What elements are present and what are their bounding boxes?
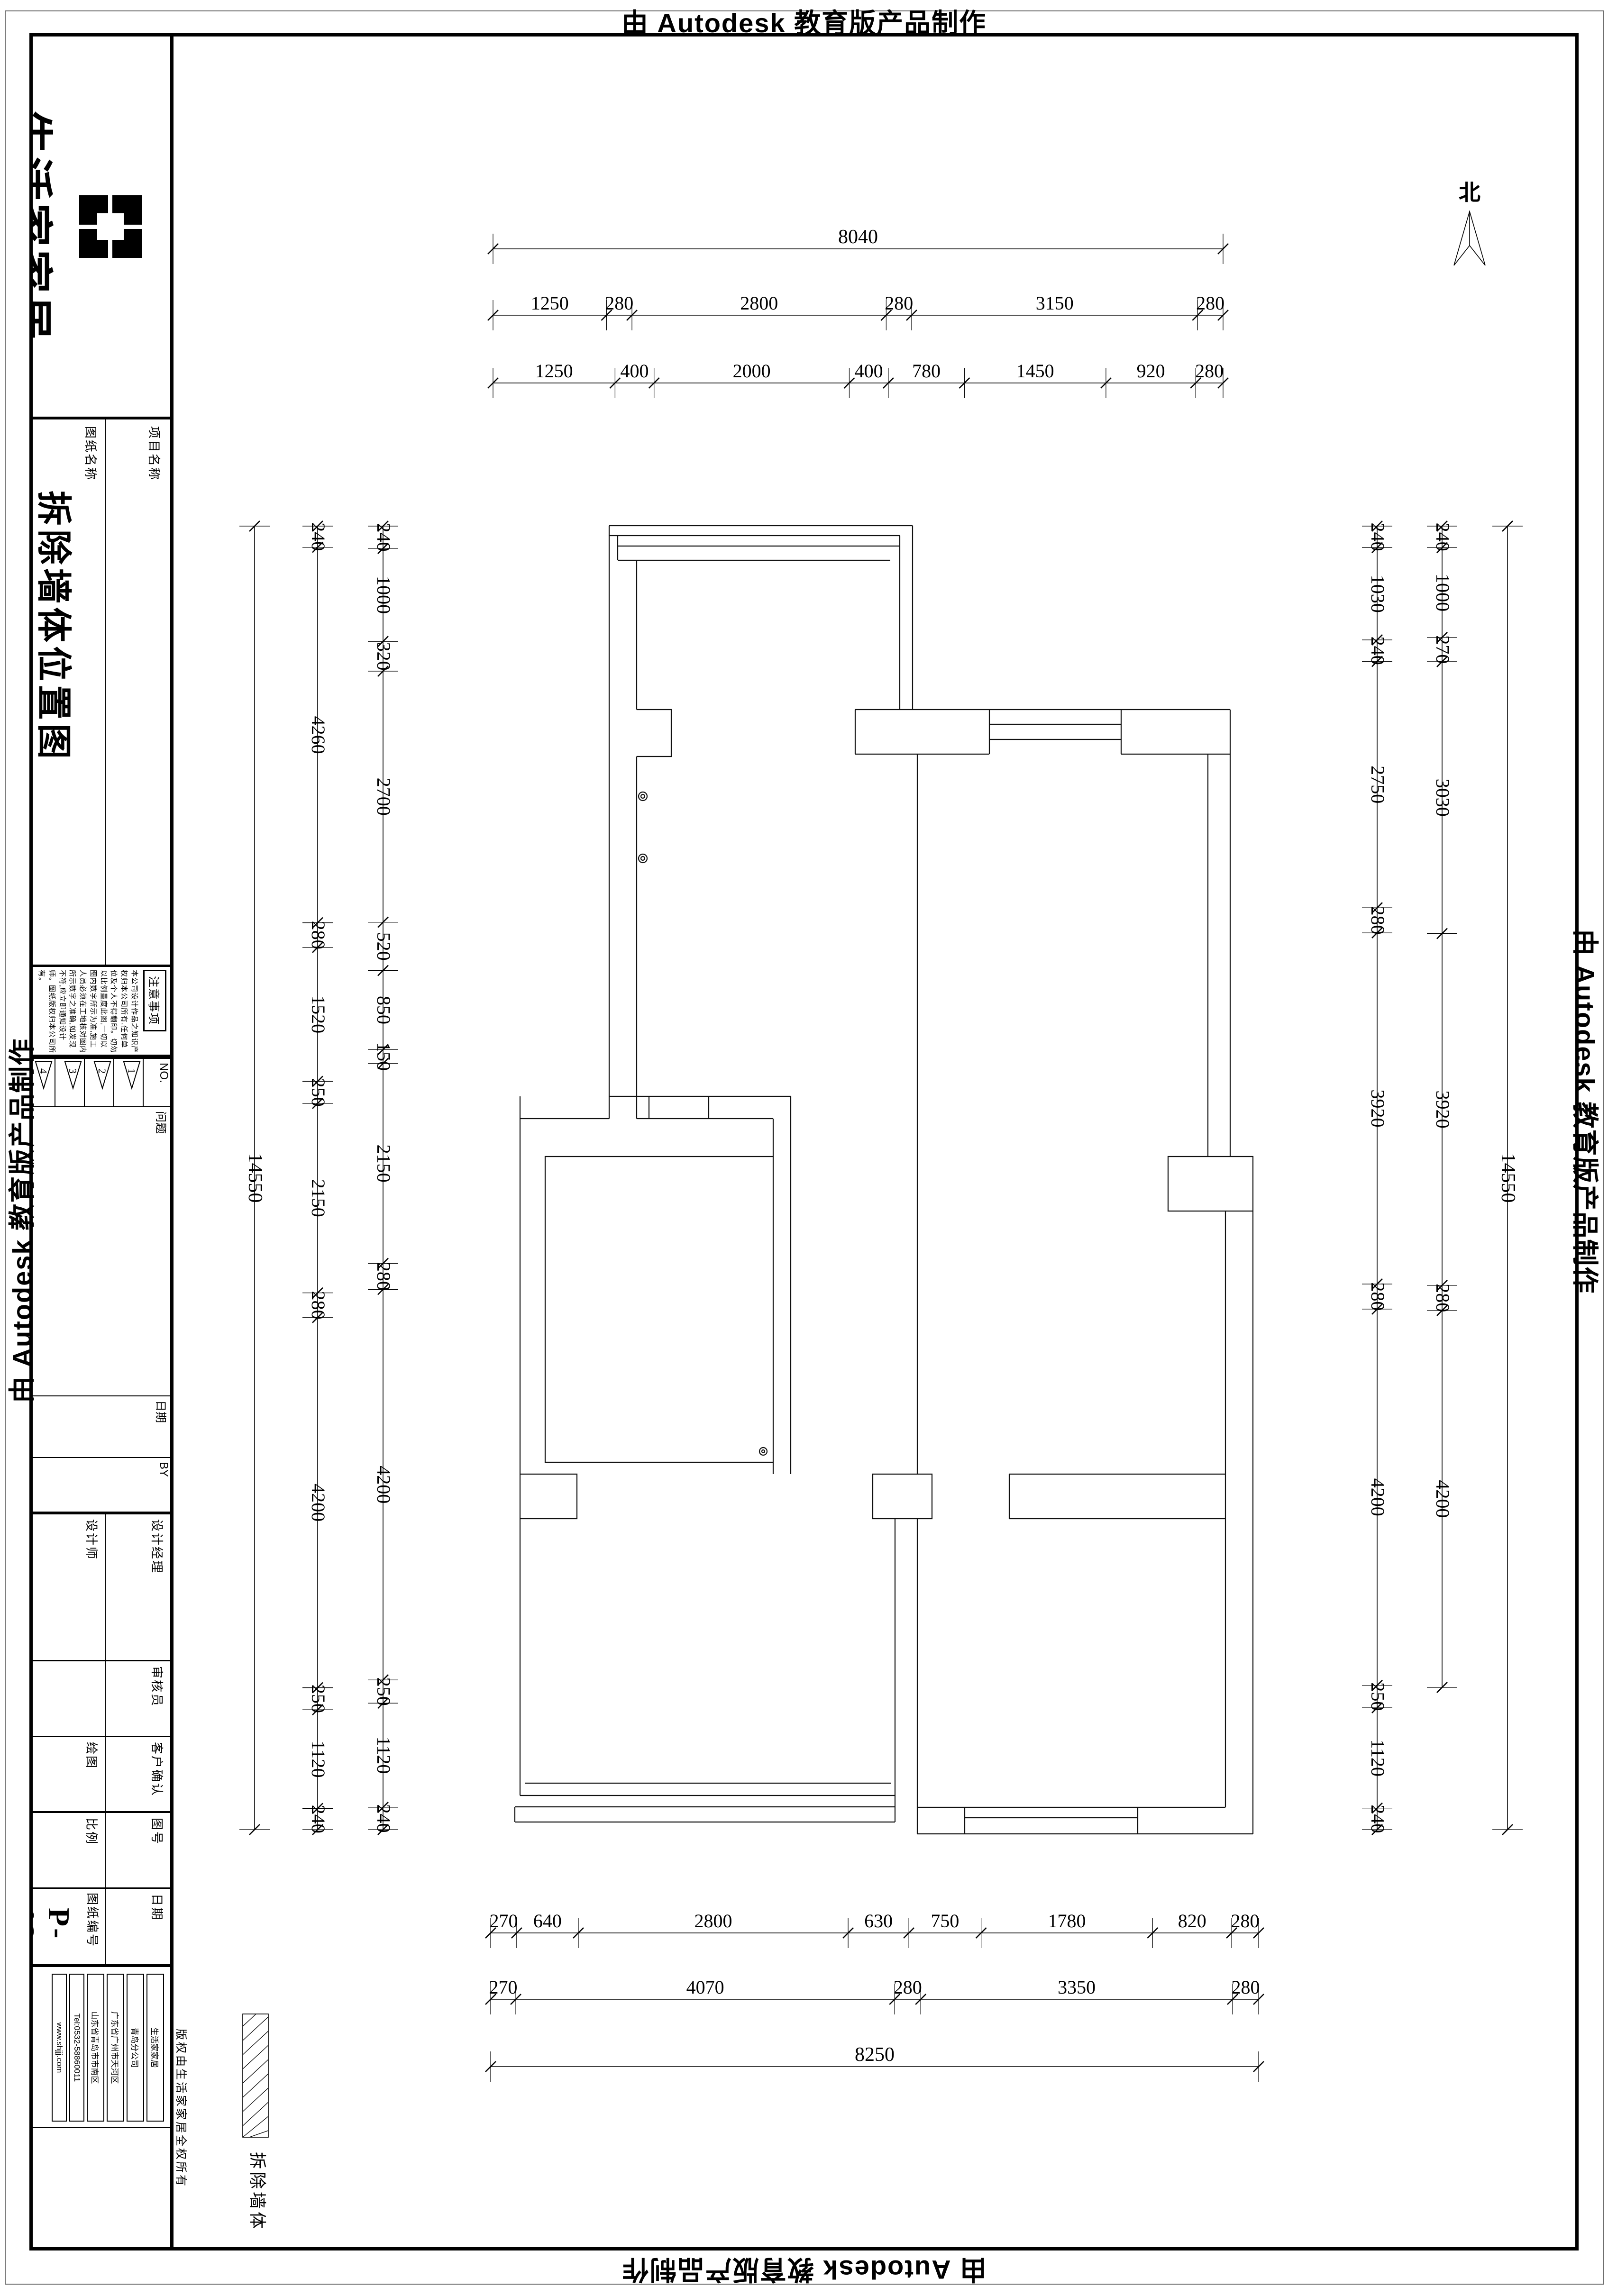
svg-text:750: 750 [931,1910,959,1932]
dimension-chains: 8040125028028002803150280125040020004007… [0,0,1608,2296]
svg-text:240: 240 [373,523,394,552]
svg-text:640: 640 [533,1910,562,1932]
svg-text:240: 240 [373,1804,394,1832]
svg-text:1120: 1120 [308,1740,329,1778]
svg-text:320: 320 [373,642,394,671]
svg-text:280: 280 [894,1977,922,1998]
svg-text:280: 280 [885,292,913,314]
svg-text:1000: 1000 [373,576,394,614]
svg-text:280: 280 [1432,1284,1453,1312]
svg-text:270: 270 [489,1910,518,1932]
svg-text:280: 280 [1195,360,1224,382]
svg-text:240: 240 [308,522,329,551]
svg-text:4200: 4200 [308,1484,329,1522]
svg-text:780: 780 [912,360,941,382]
svg-text:2800: 2800 [740,292,778,314]
svg-text:14550: 14550 [1497,1153,1519,1203]
svg-text:280: 280 [308,921,329,949]
svg-text:2800: 2800 [694,1910,732,1932]
svg-text:280: 280 [1196,292,1224,314]
svg-text:250: 250 [373,1677,394,1706]
cad-sheet: { "banner": { "text": "由 Autodesk 教育版产品制… [0,0,1608,2296]
svg-text:400: 400 [855,360,883,382]
svg-text:3350: 3350 [1058,1977,1096,1998]
svg-text:1120: 1120 [373,1737,394,1774]
svg-text:280: 280 [1367,906,1389,935]
svg-text:1780: 1780 [1048,1910,1086,1932]
svg-text:400: 400 [621,360,649,382]
svg-text:8040: 8040 [838,226,878,248]
svg-text:280: 280 [308,1291,329,1320]
svg-text:280: 280 [373,1262,394,1291]
svg-text:280: 280 [1367,1282,1389,1311]
svg-text:240: 240 [308,1805,329,1833]
svg-text:3150: 3150 [1036,292,1074,314]
svg-text:4200: 4200 [1367,1478,1389,1516]
svg-text:280: 280 [1231,1910,1260,1932]
svg-text:920: 920 [1137,360,1165,382]
svg-text:820: 820 [1178,1910,1206,1932]
svg-text:240: 240 [1367,523,1389,551]
svg-text:2150: 2150 [308,1179,329,1217]
svg-text:250: 250 [1367,1682,1389,1711]
svg-text:850: 850 [373,996,394,1024]
svg-text:2700: 2700 [373,778,394,816]
svg-text:240: 240 [1367,1804,1389,1833]
svg-text:1030: 1030 [1367,575,1389,613]
svg-text:250: 250 [308,1685,329,1713]
svg-text:250: 250 [308,1078,329,1107]
svg-text:3030: 3030 [1432,779,1453,817]
svg-text:4070: 4070 [686,1977,724,1998]
svg-text:1000: 1000 [1432,574,1453,611]
svg-text:240: 240 [1432,523,1453,551]
svg-text:2750: 2750 [1367,765,1389,803]
svg-text:280: 280 [1232,1977,1260,1998]
svg-text:1120: 1120 [1367,1740,1389,1777]
svg-text:1450: 1450 [1016,360,1054,382]
svg-text:280: 280 [605,292,633,314]
svg-text:8250: 8250 [855,2044,895,2066]
svg-text:630: 630 [864,1910,893,1932]
svg-text:1250: 1250 [531,292,569,314]
svg-text:4200: 4200 [1432,1480,1453,1518]
svg-text:520: 520 [373,932,394,961]
svg-text:2150: 2150 [373,1145,394,1183]
svg-text:1520: 1520 [308,995,329,1033]
svg-text:3920: 3920 [1432,1091,1453,1129]
svg-text:4200: 4200 [373,1466,394,1503]
svg-text:240: 240 [1367,637,1389,665]
svg-text:150: 150 [373,1042,394,1071]
svg-text:1250: 1250 [535,360,573,382]
svg-text:3920: 3920 [1367,1090,1389,1128]
svg-text:270: 270 [489,1977,518,1998]
svg-text:4260: 4260 [308,716,329,754]
svg-text:14550: 14550 [244,1153,266,1203]
svg-text:2000: 2000 [733,360,771,382]
svg-text:270: 270 [1432,635,1453,664]
